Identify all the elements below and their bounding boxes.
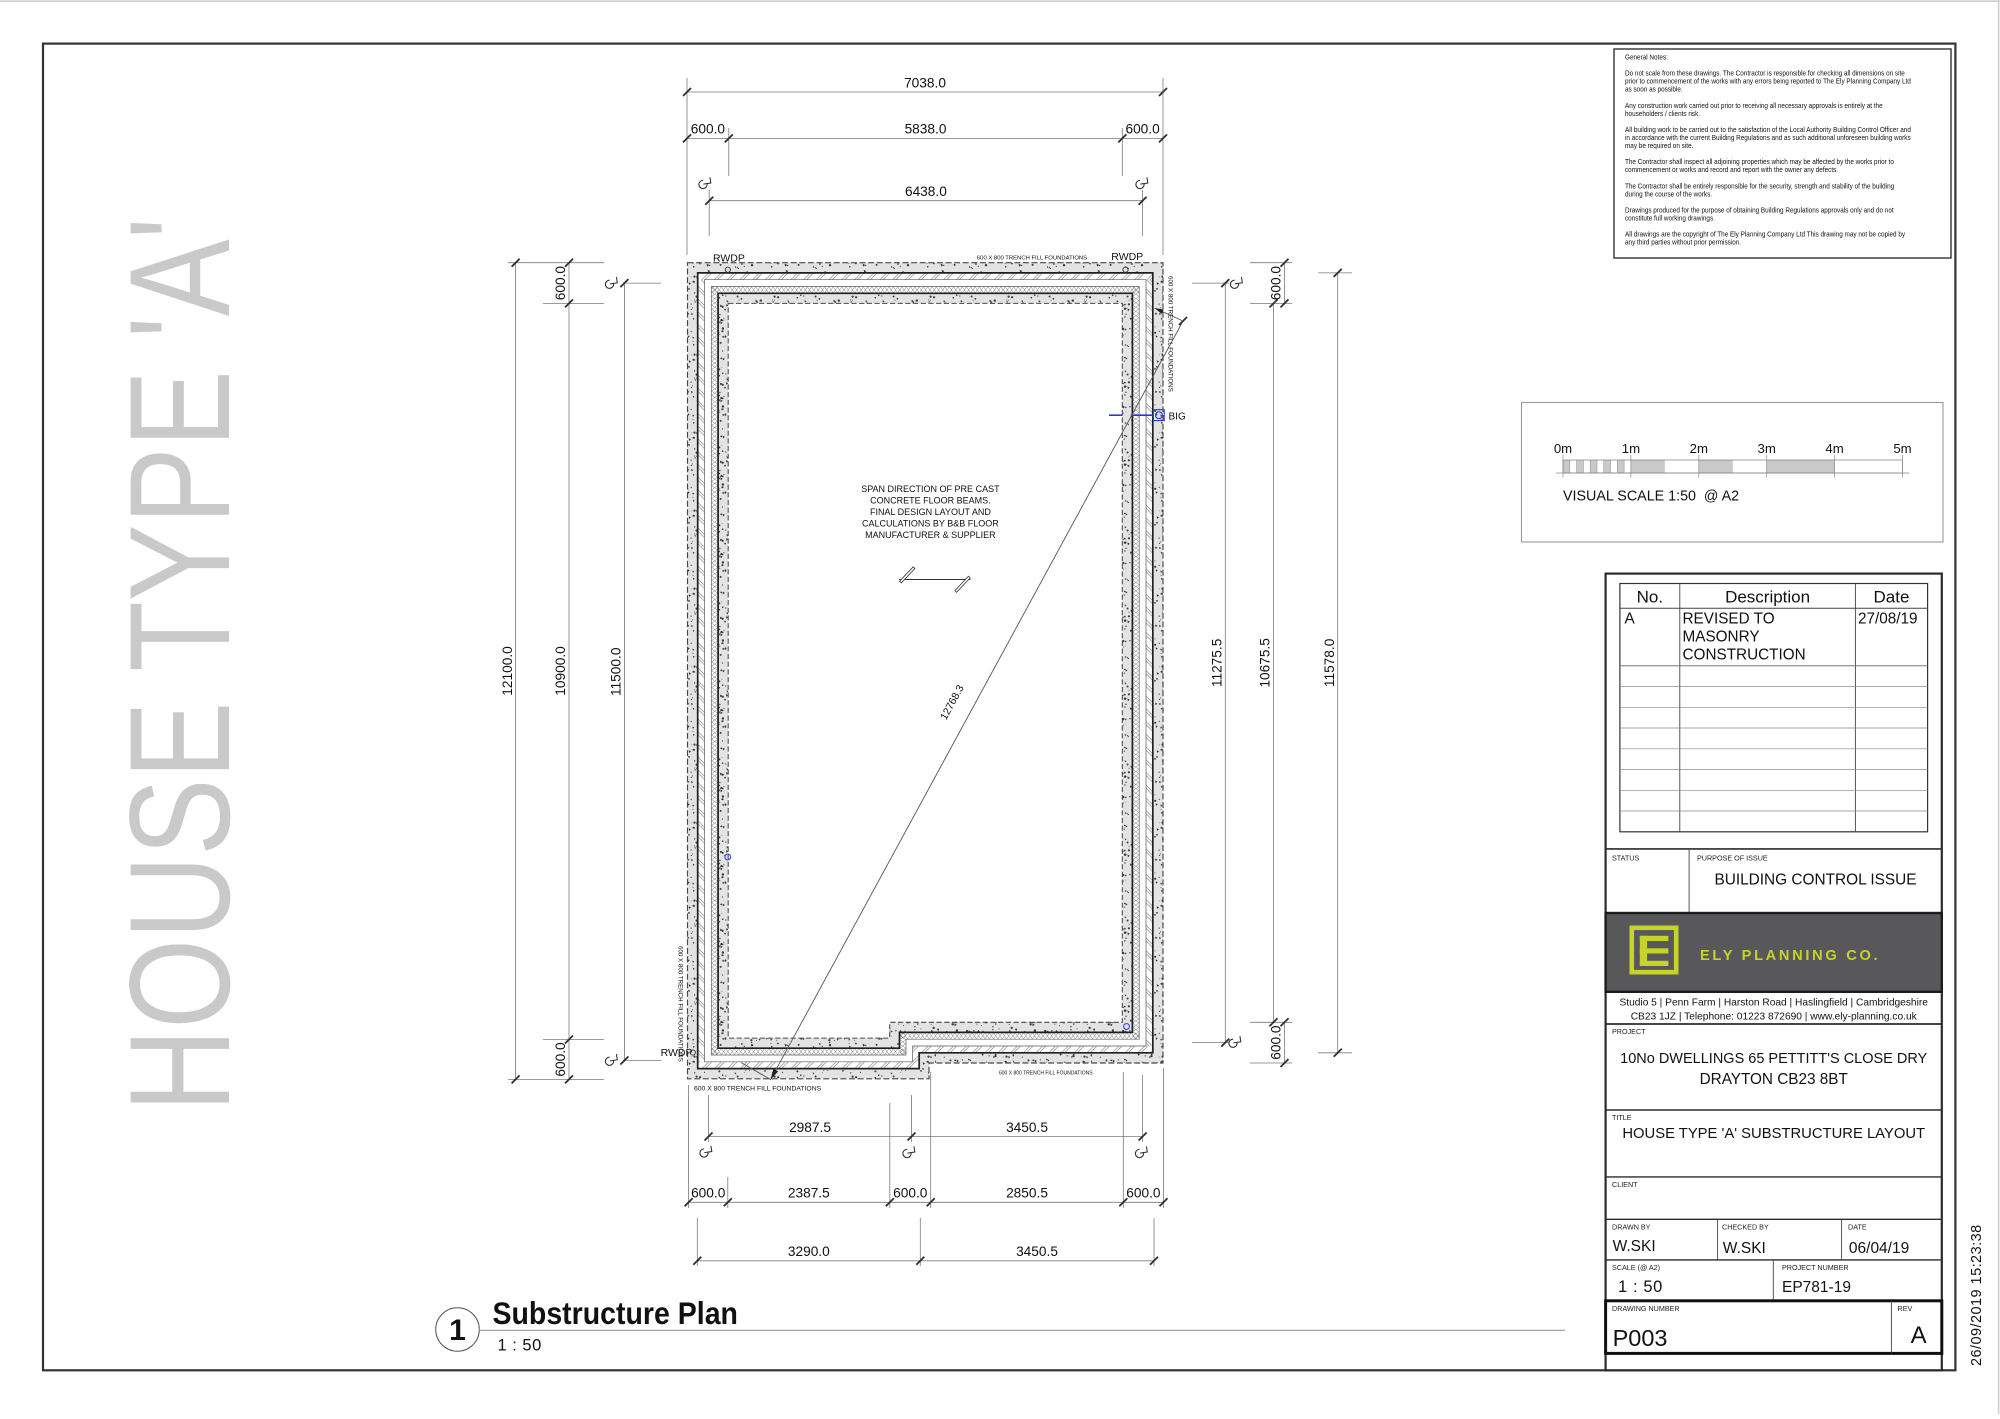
svg-text:1 : 50: 1 : 50 [1618,1278,1663,1296]
svg-text:may be required on site.: may be required on site. [1625,143,1693,151]
svg-text:600.0: 600.0 [691,122,726,137]
svg-text:600 X 800 TRENCH FILL FOUNDATI: 600 X 800 TRENCH FILL FOUNDATIONS [694,1086,822,1093]
svg-text:600.0: 600.0 [1269,1025,1284,1060]
svg-text:7038.0: 7038.0 [904,75,946,90]
svg-text:10No DWELLINGS 65 PETTITT'S CL: 10No DWELLINGS 65 PETTITT'S CLOSE DRY [1620,1051,1927,1067]
svg-text:600 X 800 TRENCH FILL FOUNDATI: 600 X 800 TRENCH FILL FOUNDATIONS [1167,276,1174,392]
svg-text:commencement or works and reco: commencement or works and record and rep… [1625,167,1838,175]
svg-text:600.0: 600.0 [691,1186,726,1201]
svg-text:PROJECT NUMBER: PROJECT NUMBER [1782,1263,1849,1272]
svg-text:No.: No. [1637,588,1663,607]
svg-text:26/09/2019 15:23:38: 26/09/2019 15:23:38 [1969,1224,1985,1366]
svg-text:2987.5: 2987.5 [789,1120,831,1135]
svg-text:in accordance with the current: in accordance with the current Building … [1625,135,1911,143]
svg-text:ELY PLANNING CO.: ELY PLANNING CO. [1700,948,1880,964]
svg-text:3450.5: 3450.5 [1006,1120,1048,1135]
svg-text:600 X 800 TRENCH FILL FOUNDATI: 600 X 800 TRENCH FILL FOUNDATIONS [999,1071,1093,1077]
svg-text:1 : 50: 1 : 50 [498,1337,542,1355]
svg-text:600.0: 600.0 [1126,1186,1161,1201]
svg-text:MASONRY: MASONRY [1683,629,1760,646]
svg-text:All drawings are the copyright: All drawings are the copyright of The El… [1625,231,1906,239]
svg-text:prior to commencement of the w: prior to commencement of the works with … [1625,78,1911,86]
svg-text:Substructure Plan: Substructure Plan [493,1297,738,1332]
svg-text:constitute full working drawin: constitute full working drawings. [1625,215,1715,223]
svg-text:2850.5: 2850.5 [1006,1186,1048,1201]
svg-text:Date: Date [1874,588,1910,607]
svg-text:EP781-19: EP781-19 [1782,1279,1851,1296]
svg-text:DRAYTON CB23 8BT: DRAYTON CB23 8BT [1700,1071,1848,1088]
svg-text:DRAWING NUMBER: DRAWING NUMBER [1612,1304,1680,1313]
svg-text:VISUAL SCALE 1:50 @ A2: VISUAL SCALE 1:50 @ A2 [1563,489,1739,505]
svg-text:4m: 4m [1825,441,1843,456]
svg-text:SPAN DIRECTION OF PRE CAST: SPAN DIRECTION OF PRE CAST [861,484,1000,494]
svg-text:CB23 1JZ | Telephone: 01223 87: CB23 1JZ | Telephone: 01223 872690 | www… [1631,1012,1918,1023]
svg-text:householders / clients risk.: householders / clients risk. [1625,110,1700,118]
svg-text:RWDP: RWDP [713,253,745,265]
svg-text:General Notes:: General Notes: [1625,54,1668,62]
svg-text:12100.0: 12100.0 [500,646,515,696]
svg-text:11275.5: 11275.5 [1210,638,1225,687]
svg-text:BIG: BIG [1169,411,1186,422]
svg-text:PURPOSE OF ISSUE: PURPOSE OF ISSUE [1697,854,1768,863]
svg-text:FINAL DESIGN LAYOUT AND: FINAL DESIGN LAYOUT AND [870,507,991,517]
svg-text:600.0: 600.0 [893,1186,928,1201]
svg-text:06/04/19: 06/04/19 [1849,1240,1909,1257]
svg-text:Studio 5 | Penn Farm | Harston: Studio 5 | Penn Farm | Harston Road | Ha… [1619,998,1928,1009]
svg-text:HOUSE TYPE 'A': HOUSE TYPE 'A' [99,217,260,1112]
svg-text:CONCRETE FLOOR BEAMS.: CONCRETE FLOOR BEAMS. [870,496,991,506]
svg-text:2m: 2m [1690,441,1708,456]
svg-text:3450.5: 3450.5 [1016,1244,1058,1259]
svg-text:6438.0: 6438.0 [905,184,947,199]
svg-text:600.0: 600.0 [553,266,568,301]
svg-text:any third parties without prio: any third parties without prior permissi… [1625,239,1741,247]
svg-text:BUILDING CONTROL ISSUE: BUILDING CONTROL ISSUE [1714,872,1916,889]
svg-text:10900.0: 10900.0 [553,646,568,696]
svg-text:during the course of the works: during the course of the works. [1625,191,1712,199]
svg-text:as soon as possible.: as soon as possible. [1625,86,1683,94]
svg-text:0m: 0m [1554,441,1572,456]
svg-text:Any construction work carried: Any construction work carried out prior … [1625,102,1883,110]
svg-text:CALCULATIONS BY B&B FLOOR: CALCULATIONS BY B&B FLOOR [862,518,999,528]
svg-text:600 X 800 TRENCH FILL FOUNDATI: 600 X 800 TRENCH FILL FOUNDATIONS [977,256,1087,262]
svg-text:5838.0: 5838.0 [905,122,947,137]
svg-text:SCALE (@ A2): SCALE (@ A2) [1612,1263,1660,1272]
svg-text:P003: P003 [1613,1325,1668,1351]
svg-text:REV: REV [1898,1304,1913,1313]
svg-text:600.0: 600.0 [553,1042,568,1077]
svg-text:Do not scale from these drawin: Do not scale from these drawings. The Co… [1625,70,1905,78]
svg-text:W.SKI: W.SKI [1723,1240,1766,1257]
svg-text:DATE: DATE [1848,1223,1867,1232]
svg-text:CHECKED BY: CHECKED BY [1722,1223,1769,1232]
svg-text:Description: Description [1725,588,1810,607]
svg-text:Drawings produced for the purp: Drawings produced for the purpose of obt… [1625,207,1894,215]
svg-text:11578.0: 11578.0 [1322,638,1337,687]
svg-text:600.0: 600.0 [1269,266,1284,301]
svg-text:27/08/19: 27/08/19 [1858,611,1918,628]
svg-text:MANUFACTURER & SUPPLIER: MANUFACTURER & SUPPLIER [865,530,996,540]
svg-text:DRAWN BY: DRAWN BY [1612,1223,1651,1232]
svg-text:A: A [1911,1322,1927,1349]
svg-text:RWDP: RWDP [1111,251,1143,263]
svg-text:PROJECT: PROJECT [1612,1027,1646,1036]
svg-text:3m: 3m [1758,441,1776,456]
svg-text:The Contractor shall inspect a: The Contractor shall inspect all adjoini… [1625,159,1894,167]
svg-text:STATUS: STATUS [1612,854,1639,863]
svg-text:REVISED TO: REVISED TO [1683,611,1775,628]
svg-text:CONSTRUCTION: CONSTRUCTION [1683,647,1806,664]
svg-text:5m: 5m [1893,441,1911,456]
svg-text:2387.5: 2387.5 [788,1186,830,1201]
svg-text:10675.5: 10675.5 [1258,638,1273,688]
svg-text:3290.0: 3290.0 [788,1244,830,1259]
svg-text:600 X 800 TRENCH FILL FOUNDATI: 600 X 800 TRENCH FILL FOUNDATIONS [677,946,684,1062]
svg-text:11500.0: 11500.0 [609,647,624,696]
svg-text:TITLE: TITLE [1612,1113,1632,1122]
svg-text:The Contractor shall be entire: The Contractor shall be entirely respons… [1625,183,1894,191]
svg-text:All building work to be carrie: All building work to be carried out to t… [1625,127,1911,135]
svg-text:1m: 1m [1622,441,1640,456]
svg-text:1: 1 [449,1314,466,1347]
svg-text:CLIENT: CLIENT [1612,1180,1638,1189]
svg-text:A: A [1625,611,1636,628]
svg-text:W.SKI: W.SKI [1613,1238,1656,1255]
svg-text:HOUSE TYPE 'A' SUBSTRUCTURE LA: HOUSE TYPE 'A' SUBSTRUCTURE LAYOUT [1622,1126,1925,1142]
svg-text:600.0: 600.0 [1125,122,1160,137]
